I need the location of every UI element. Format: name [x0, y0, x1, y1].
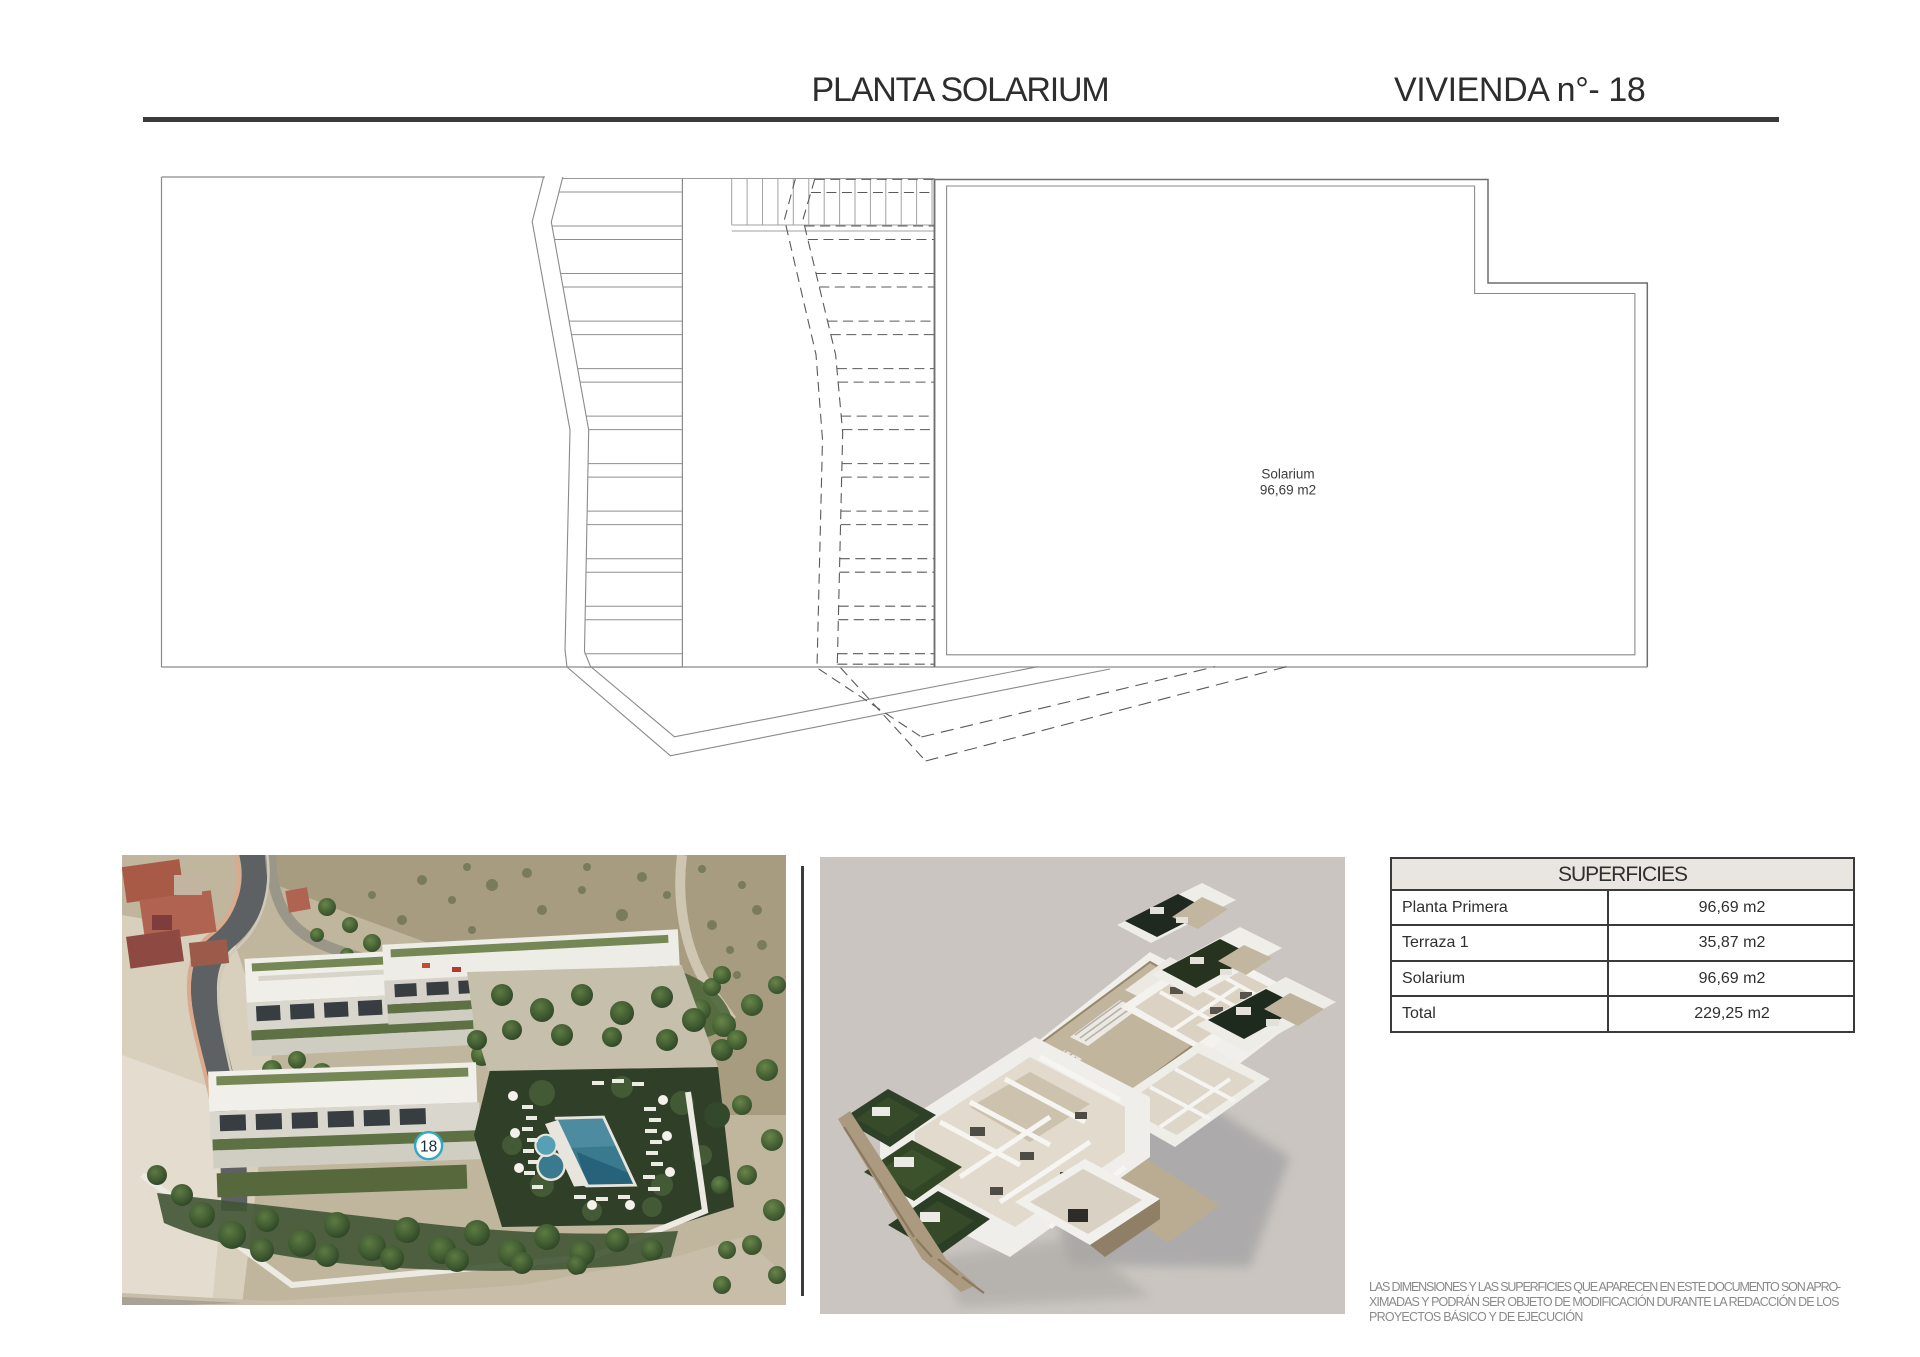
svg-text:96,69 m2: 96,69 m2	[1260, 483, 1316, 498]
svg-text:18: 18	[420, 1139, 437, 1156]
svg-text:Solarium: Solarium	[1261, 467, 1314, 482]
